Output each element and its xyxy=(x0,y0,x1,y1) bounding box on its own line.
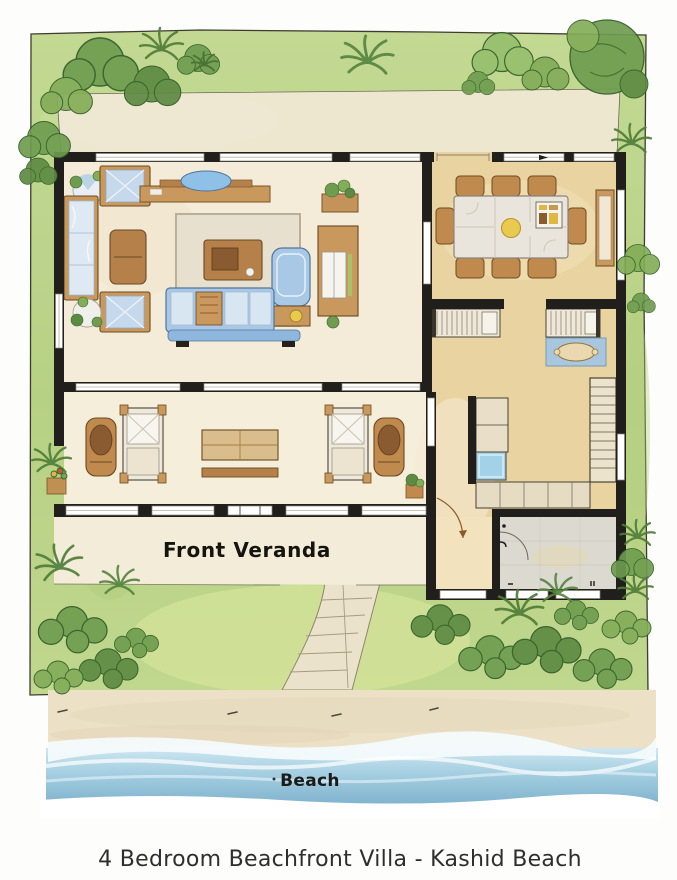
window xyxy=(506,591,548,599)
centerpiece-bowl xyxy=(502,219,521,238)
door-opening xyxy=(504,299,546,309)
dining-chair xyxy=(492,258,520,278)
grass-texture xyxy=(622,310,650,550)
dining-chair xyxy=(456,176,484,196)
blue-bowl xyxy=(181,171,231,191)
potted-plant xyxy=(327,316,339,328)
wall xyxy=(492,509,622,517)
dining-chair xyxy=(528,176,556,196)
window xyxy=(424,222,431,284)
kitchen-sink xyxy=(476,452,506,480)
tree-canopy xyxy=(567,20,599,52)
dining-chair xyxy=(456,258,484,278)
beach-label-dot xyxy=(273,778,276,781)
beach-label: Beach xyxy=(280,771,340,791)
bench-rail xyxy=(202,468,278,477)
veranda-door xyxy=(228,506,272,515)
lounge-chair xyxy=(374,418,404,476)
potted-plant xyxy=(71,314,83,326)
floor-plan-illustration: Front Veranda Beach 4 Bedroom Beachfront… xyxy=(0,0,677,880)
armchair xyxy=(100,292,150,332)
kitchen-counter xyxy=(476,482,590,508)
dining-chair xyxy=(568,208,586,244)
dining-chair xyxy=(528,258,556,278)
hallway-floor xyxy=(434,517,492,589)
dining-chair xyxy=(492,176,520,196)
sofa-base xyxy=(168,330,300,341)
tree-canopy xyxy=(620,70,648,98)
wall xyxy=(492,509,500,599)
caption-title: 4 Bedroom Beachfront Villa - Kashid Beac… xyxy=(98,847,582,872)
wall xyxy=(468,396,476,484)
staircase xyxy=(590,378,616,482)
front-veranda-label: Front Veranda xyxy=(163,538,331,562)
daybed xyxy=(120,405,166,483)
window xyxy=(618,434,625,480)
dining-chair xyxy=(436,208,454,244)
lounge-chair xyxy=(86,418,116,476)
basin xyxy=(557,343,595,361)
potted-plant xyxy=(325,183,339,197)
plant-pot xyxy=(47,478,66,494)
window xyxy=(428,398,435,446)
door-opening xyxy=(434,152,492,162)
table-lamp xyxy=(290,310,302,322)
window xyxy=(440,591,486,599)
daybed xyxy=(325,405,371,483)
potted-plant xyxy=(70,176,82,188)
floor-plan-page: Front Veranda Beach 4 Bedroom Beachfront… xyxy=(0,0,677,880)
